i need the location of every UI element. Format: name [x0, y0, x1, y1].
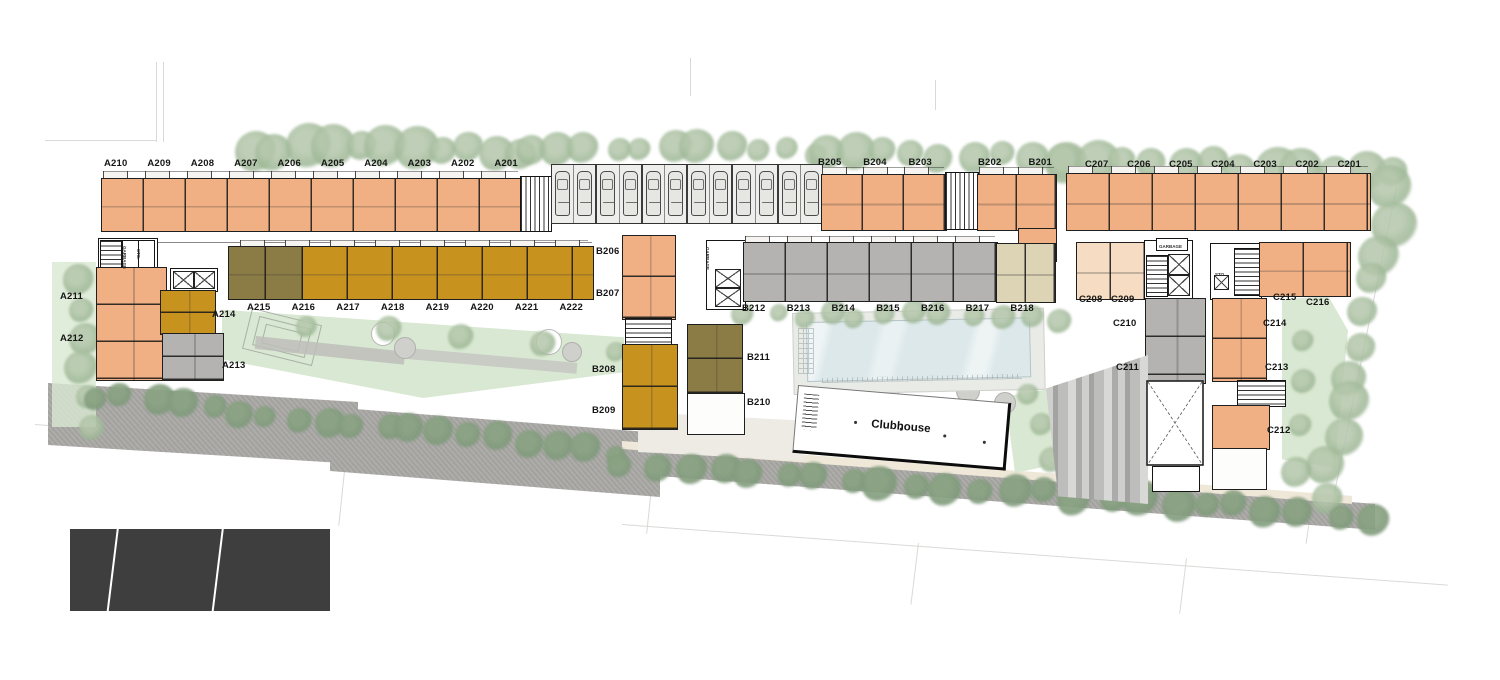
- unit-dividers: [1260, 243, 1350, 296]
- stairs-icon: [625, 318, 672, 346]
- tree-icon: [315, 408, 347, 440]
- tree-icon: [676, 454, 708, 486]
- tree-icon: [904, 474, 930, 500]
- tree-icon: [608, 138, 632, 162]
- garbage-room: [1156, 238, 1188, 251]
- tree-icon: [1220, 490, 1248, 518]
- parking-stall: [552, 165, 573, 223]
- elevator-core: [170, 268, 218, 292]
- unit-dividers: [97, 268, 166, 380]
- building-c208-c209: [1076, 242, 1147, 300]
- unit-label: A208: [191, 158, 215, 169]
- unit-label: B216: [921, 303, 945, 314]
- ramp-room: [1146, 380, 1204, 466]
- building-a-wing-north: [101, 178, 522, 232]
- tree-icon: [1346, 333, 1377, 364]
- unit-label: B204: [863, 157, 887, 168]
- unit-label: B205: [818, 157, 842, 168]
- tree-icon: [799, 462, 828, 491]
- building-c-wing-north: [1066, 173, 1371, 231]
- tree-icon: [776, 137, 799, 160]
- unit-dividers: [623, 236, 675, 319]
- tree-icon: [1047, 309, 1072, 334]
- tree-icon: [107, 383, 131, 407]
- parking-stall: [731, 165, 754, 223]
- building-b210: [687, 393, 745, 435]
- tree-icon: [679, 129, 715, 165]
- unit-label: C205: [1169, 159, 1193, 170]
- unit-label: C206: [1127, 159, 1151, 170]
- tree-icon: [540, 132, 575, 167]
- building-a213: [162, 333, 224, 381]
- elevator-icon: [173, 271, 194, 289]
- tree-icon: [1162, 489, 1197, 524]
- tree-icon: [1325, 418, 1365, 458]
- unit-label: C207: [1085, 159, 1109, 170]
- tree-icon: [1289, 414, 1312, 437]
- unit-label: A220: [470, 302, 494, 313]
- unit-label: A202: [451, 158, 475, 169]
- tree-icon: [376, 316, 402, 342]
- unit-dividers: [1077, 243, 1146, 299]
- tree-icon: [711, 454, 742, 485]
- unit-label: C202: [1295, 159, 1319, 170]
- unit-dividers: [623, 345, 677, 429]
- tree-icon: [287, 408, 313, 434]
- car-icon: [759, 171, 774, 216]
- tree-border: [0, 0, 1500, 680]
- tree-icon: [483, 421, 514, 452]
- unit-label: A217: [336, 302, 360, 313]
- tree-icon: [530, 331, 556, 357]
- tree-icon: [1292, 330, 1315, 353]
- tree-icon: [1368, 165, 1413, 210]
- service-room: [1152, 466, 1200, 492]
- car-icon: [668, 171, 683, 216]
- tree-icon: [1017, 384, 1039, 406]
- row-a-top-labels: A210A209A208A207A206A205A204A203A202A201: [104, 158, 518, 169]
- row-b-top-left-labels: B205B204B203: [818, 157, 932, 168]
- building-c210-c211: [1145, 298, 1206, 384]
- tree-icon: [1291, 369, 1316, 394]
- building-c213-c214: [1212, 298, 1267, 382]
- unit-label: B212: [742, 303, 766, 314]
- unit-label: B215: [876, 303, 900, 314]
- parking-stall: [619, 165, 641, 223]
- unit-label: A203: [408, 158, 432, 169]
- elevator-icon: [194, 271, 215, 289]
- site-plan: Clubhouse A210A209A208A207A206A205A204A2…: [0, 0, 1500, 680]
- tree-icon: [967, 479, 993, 505]
- building-b211: [687, 324, 743, 395]
- unit-dividers: [303, 247, 593, 299]
- unit-dividers: [688, 325, 742, 394]
- unit-dividers: [1067, 174, 1370, 230]
- tree-icon: [1371, 202, 1418, 249]
- tree-icon: [455, 422, 481, 448]
- tree-icon: [1306, 446, 1345, 485]
- unit-dividers: [1213, 299, 1266, 381]
- parking-stall: [686, 165, 709, 223]
- car-icon: [782, 171, 797, 216]
- unit-label: A222: [559, 302, 583, 313]
- tree-icon: [338, 414, 363, 439]
- tree-icon: [516, 135, 547, 166]
- tree-icon: [84, 388, 108, 412]
- elevator-core: [706, 240, 746, 310]
- tree-icon: [999, 474, 1033, 508]
- tree-icon: [76, 385, 101, 410]
- building-c215-c216: [1259, 242, 1351, 297]
- tree-icon: [1347, 297, 1378, 328]
- tree-icon: [659, 130, 693, 164]
- unit-label: A206: [278, 158, 302, 169]
- car-icon: [736, 171, 751, 216]
- building-a-wing-mid: [302, 246, 594, 300]
- parking-stall: [573, 165, 595, 223]
- tree-icon: [448, 324, 474, 350]
- row-b-mid-labels: B212B213B214B215B216B217B218: [742, 303, 1034, 314]
- tree-icon: [543, 431, 574, 462]
- lobby-room: [1212, 448, 1267, 490]
- building-a214: [160, 290, 216, 335]
- tree-icon: [69, 298, 94, 323]
- tree-icon: [204, 395, 228, 419]
- unit-label: A216: [292, 302, 316, 313]
- tree-icon: [607, 454, 632, 479]
- building-b-wing-north: [977, 174, 1057, 231]
- tree-icon: [1331, 361, 1367, 397]
- tree-icon: [1329, 505, 1355, 531]
- tree-icon: [423, 416, 454, 447]
- building-b208-b209: [622, 344, 678, 430]
- car-icon: [623, 171, 638, 216]
- car-icon: [555, 171, 570, 216]
- unit-dividers: [1146, 299, 1205, 383]
- unit-label: A205: [321, 158, 345, 169]
- stairs-icon: [520, 176, 552, 232]
- tree-icon: [1031, 477, 1057, 503]
- row-b-top-right-labels: B202B201: [978, 157, 1052, 168]
- tree-icon: [861, 466, 897, 502]
- tree-icon: [378, 414, 404, 440]
- car-icon: [713, 171, 728, 216]
- stairs-icon: [100, 240, 122, 269]
- unit-label: A201: [494, 158, 518, 169]
- tree-icon: [747, 139, 770, 162]
- tree-icon: [1378, 157, 1408, 187]
- unit-label: C203: [1253, 159, 1277, 170]
- tree-icon: [1357, 504, 1390, 537]
- tree-icon: [842, 469, 867, 494]
- car-icon: [646, 171, 661, 216]
- parking-stall: [664, 165, 686, 223]
- unit-label: A204: [364, 158, 388, 169]
- storage-room: [138, 240, 155, 269]
- tree-icon: [79, 415, 105, 441]
- tree-icon: [1329, 381, 1370, 422]
- unit-dividers: [229, 247, 303, 299]
- building-b218: [996, 243, 1056, 303]
- unit-dividers: [161, 291, 215, 334]
- parking-stall: [709, 165, 731, 223]
- parking-stall: [777, 165, 800, 223]
- unit-label: B217: [966, 303, 990, 314]
- unit-label: C201: [1337, 159, 1361, 170]
- unit-label: B214: [831, 303, 855, 314]
- building-b-wing-mid: [743, 242, 998, 302]
- tree-icon: [606, 446, 626, 466]
- building-a211-a212: [96, 267, 167, 381]
- car-icon: [600, 171, 615, 216]
- stairs-icon: [1146, 255, 1168, 297]
- tree-icon: [778, 463, 803, 488]
- unit-label: A209: [147, 158, 171, 169]
- parking-stall: [800, 165, 822, 223]
- tree-icon: [717, 131, 748, 162]
- row-a-mid-labels: A215A216A217A218A219A220A221A222: [247, 302, 583, 313]
- unit-label: A215: [247, 302, 271, 313]
- tree-icon: [515, 430, 544, 459]
- building-b206-b207: [622, 235, 676, 320]
- unit-dividers: [822, 175, 946, 230]
- building-b-wing-north: [821, 174, 947, 231]
- elevator-icon: [715, 269, 741, 288]
- unit-label: A207: [234, 158, 258, 169]
- parking-row: [551, 164, 823, 224]
- parking-stall: [595, 165, 618, 223]
- tree-icon: [64, 351, 98, 385]
- tree-icon: [63, 264, 95, 296]
- unit-label: B213: [787, 303, 811, 314]
- tree-icon: [1358, 236, 1400, 278]
- unit-label: B203: [908, 157, 932, 168]
- garbage-room: [122, 240, 139, 269]
- car-icon: [804, 171, 819, 216]
- tree-icon: [254, 406, 277, 429]
- tree-icon: [296, 316, 317, 337]
- unit-label: B202: [978, 157, 1002, 168]
- parking-stall: [755, 165, 777, 223]
- stairs-icon: [945, 172, 979, 230]
- stairs-icon: [1234, 248, 1260, 296]
- unit-dividers: [744, 243, 997, 301]
- tree-icon: [1249, 496, 1282, 529]
- tree-icon: [225, 401, 254, 430]
- tree-icon: [628, 138, 651, 161]
- elevator-icon: [715, 288, 741, 307]
- unit-label: A219: [426, 302, 450, 313]
- elevator-icon: [1168, 254, 1190, 275]
- tree-icon: [928, 473, 962, 507]
- tree-icon: [1312, 483, 1343, 514]
- elevator-icon: [1214, 275, 1229, 290]
- stairs-icon: [1237, 380, 1286, 407]
- tree-icon: [570, 432, 601, 463]
- unit-dividers: [997, 244, 1055, 302]
- unit-dividers: [163, 334, 223, 380]
- unit-label: B201: [1028, 157, 1052, 168]
- car-icon: [577, 171, 592, 216]
- tree-icon: [1356, 263, 1387, 294]
- tree-icon: [1195, 493, 1219, 517]
- parking-stall: [641, 165, 664, 223]
- tree-icon: [567, 132, 599, 164]
- tree-icon: [733, 459, 763, 489]
- tree-icon: [1282, 497, 1313, 528]
- unit-label: B218: [1010, 303, 1034, 314]
- tree-icon: [394, 413, 424, 443]
- unit-label: A210: [104, 158, 128, 169]
- unit-dividers: [102, 179, 521, 231]
- building-a-wing-olive: [228, 246, 304, 300]
- unit-label: A221: [515, 302, 539, 313]
- tree-icon: [144, 384, 176, 416]
- tree-icon: [347, 131, 377, 161]
- tree-icon: [168, 388, 199, 419]
- unit-dividers: [978, 175, 1056, 230]
- elevator-icon: [1168, 275, 1190, 296]
- row-c-top-labels: C207C206C205C204C203C202C201: [1085, 159, 1361, 170]
- unit-label: C204: [1211, 159, 1235, 170]
- unit-label: A218: [381, 302, 405, 313]
- building-c212: [1212, 405, 1270, 450]
- tree-icon: [1281, 457, 1312, 488]
- car-icon: [691, 171, 706, 216]
- tree-icon: [644, 454, 672, 482]
